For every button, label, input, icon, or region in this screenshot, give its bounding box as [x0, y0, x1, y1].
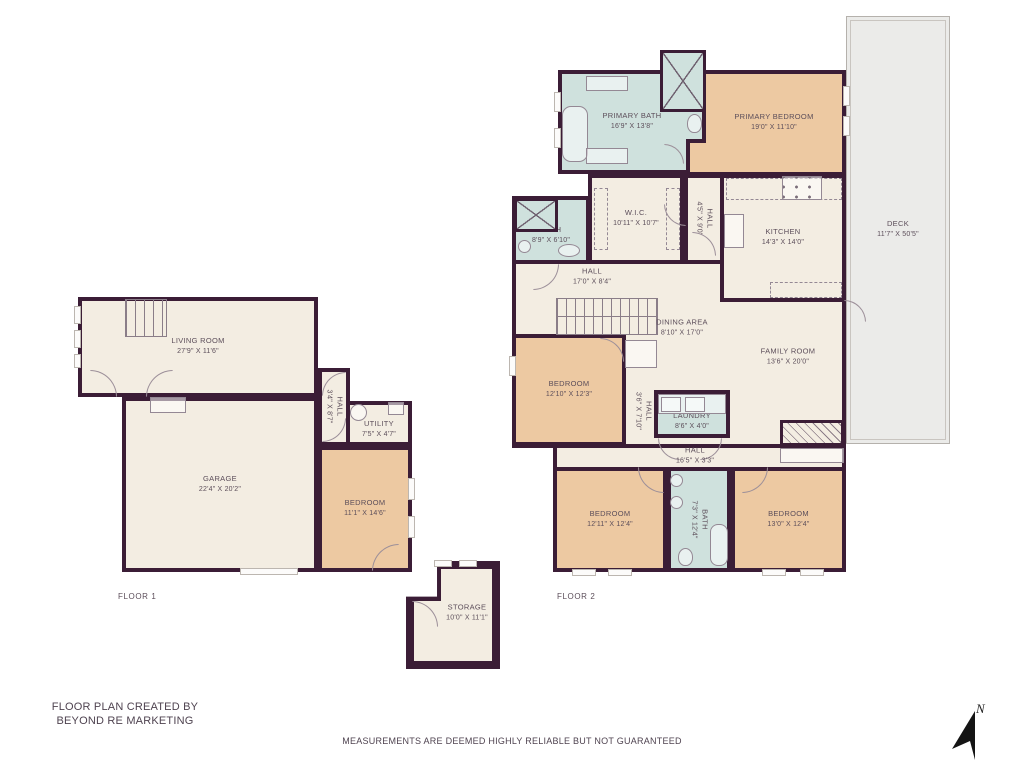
washer [661, 397, 681, 412]
fridge [724, 214, 744, 248]
room-deck-name: DECK [877, 219, 919, 230]
room-utility-dims: 7'5" X 4'7" [362, 430, 396, 440]
room-bedroom-right-dims: 13'0" X 12'4" [767, 520, 809, 530]
room-wic-name: W.I.C. [613, 208, 659, 219]
room-primary-bedroom-label: PRIMARY BEDROOM 19'0" X 11'10" [734, 112, 813, 133]
bathtub-primary [562, 106, 588, 162]
window [554, 128, 561, 148]
room-dining-area-label: DINING AREA 8'10" X 17'0" [656, 317, 708, 338]
dryer [685, 397, 705, 412]
window [843, 86, 850, 106]
room-bedroom-right-name: BEDROOM [767, 509, 809, 520]
room-storage-name: STORAGE [446, 602, 488, 613]
room-bath-mid-name: BATH [699, 500, 710, 538]
room-bedroom-mid-name: BEDROOM [546, 379, 592, 390]
stairs-rail [556, 316, 658, 317]
room-bath-mid-label: BATH 7'3" X 12'4" [688, 500, 709, 538]
room-garage-name: GARAGE [199, 474, 241, 485]
toilet-primary [687, 114, 702, 133]
deck-landing [780, 448, 844, 463]
floor-plan-canvas: DECK 11'7" X 50'5" KITCHEN 14'3" X 14'0"… [0, 0, 1024, 768]
window [408, 478, 415, 500]
room-hall-lower-name: HALL [676, 445, 714, 456]
room-laundry-label: LAUNDRY 8'6" X 4'0" [673, 411, 711, 432]
deck-stairs-hatch [780, 420, 844, 446]
credit-line2: BEYOND RE MARKETING [50, 714, 200, 728]
toilet-small-bath [558, 244, 580, 257]
room-hall-lower-label: HALL 16'5" X 3'3" [676, 445, 714, 466]
room-hall-small-dims: 3'6" X 7'10" [632, 392, 642, 430]
room-primary-bath-name: PRIMARY BATH [602, 111, 661, 122]
room-living-room-label: LIVING ROOM 27'9" X 11'6" [171, 336, 224, 357]
room-primary-bedroom-name: PRIMARY BEDROOM [734, 112, 813, 123]
room-bedroom-floor1-label: BEDROOM 11'1" X 14'6" [344, 498, 386, 519]
room-laundry-dims: 8'6" X 4'0" [673, 422, 711, 432]
room-primary-bath-label: PRIMARY BATH 16'9" X 13'8" [602, 111, 661, 132]
room-hall-lower-dims: 16'5" X 3'3" [676, 456, 714, 466]
window [74, 330, 81, 348]
sink-small-bath [518, 240, 531, 253]
room-living-room-name: LIVING ROOM [171, 336, 224, 347]
north-label: N [975, 701, 986, 716]
window [608, 569, 632, 576]
room-hall-upper-dims: 4'5" X 9'0" [694, 202, 704, 236]
floor1-tag: FLOOR 1 [118, 592, 156, 601]
shower-primary-bath [660, 50, 706, 112]
kitchen-island [770, 282, 842, 298]
garage-door [240, 568, 298, 575]
window [459, 560, 477, 567]
room-bedroom-mid-dims: 12'10" X 12'3" [546, 390, 592, 400]
bedroom-mid-closet [625, 340, 657, 368]
room-living-room-dims: 27'9" X 11'6" [171, 347, 224, 357]
vanity-bottom [586, 148, 628, 164]
shower-small-bath [514, 198, 558, 232]
room-family-room-dims: 13'6" X 20'0" [761, 357, 816, 367]
window [843, 116, 850, 136]
window [408, 516, 415, 538]
floor2-tag: FLOOR 2 [557, 592, 595, 601]
window [434, 560, 452, 567]
room-hall-small-label: HALL 3'6" X 7'10" [632, 392, 653, 430]
room-kitchen-label: KITCHEN 14'3" X 14'0" [762, 227, 804, 248]
room-bedroom-left-label: BEDROOM 12'11" X 12'4" [587, 509, 633, 530]
room-primary-bath-dims: 16'9" X 13'8" [602, 122, 661, 132]
utility-box [388, 402, 404, 415]
vanity-top [586, 76, 628, 91]
room-family-room-label: FAMILY ROOM 13'6" X 20'0" [761, 346, 816, 367]
room-deck: DECK 11'7" X 50'5" [846, 16, 950, 444]
room-primary-bedroom: PRIMARY BEDROOM 19'0" X 11'10" [702, 70, 846, 176]
room-bath-mid-dims: 7'3" X 12'4" [688, 500, 698, 538]
room-living-room: LIVING ROOM 27'9" X 11'6" [78, 297, 318, 397]
window [74, 354, 81, 368]
primary-bedroom-alcove [686, 139, 706, 176]
bathtub-mid [710, 524, 728, 566]
room-family-room-name: FAMILY ROOM [761, 346, 816, 357]
stairs-floor1 [125, 299, 167, 337]
room-bedroom-mid-label: BEDROOM 12'10" X 12'3" [546, 379, 592, 400]
room-utility-label: UTILITY 7'5" X 4'7" [362, 419, 396, 440]
room-storage-dims: 10'0" X 11'1" [446, 613, 488, 623]
room-primary-bedroom-dims: 19'0" X 11'10" [734, 123, 813, 133]
stove [782, 176, 822, 200]
room-hall-main-name: HALL [573, 266, 611, 277]
room-bedroom-left-name: BEDROOM [587, 509, 633, 520]
room-hall-upper-name: HALL [704, 202, 715, 236]
credit-line1: FLOOR PLAN CREATED BY [50, 700, 200, 714]
room-bedroom-left-dims: 12'11" X 12'4" [587, 520, 633, 530]
wic-closet-left [594, 188, 608, 250]
room-garage: GARAGE 22'4" X 20'2" [122, 397, 318, 572]
window [800, 569, 824, 576]
window [509, 356, 516, 376]
room-hall-main-dims: 17'0" X 8'4" [573, 277, 611, 287]
room-hall-upper-label: HALL 4'5" X 9'0" [694, 202, 715, 236]
window [762, 569, 786, 576]
window [572, 569, 596, 576]
room-bedroom-floor1-dims: 11'1" X 14'6" [344, 509, 386, 519]
room-hall-small-name: HALL [643, 392, 654, 430]
room-kitchen-name: KITCHEN [762, 227, 804, 238]
room-bedroom-right-label: BEDROOM 13'0" X 12'4" [767, 509, 809, 530]
sink-mid-bath-2 [670, 496, 683, 509]
room-deck-label: DECK 11'7" X 50'5" [877, 219, 919, 240]
room-dining-area-dims: 8'10" X 17'0" [656, 328, 708, 338]
room-wic-label: W.I.C. 10'11" X 10'7" [613, 208, 659, 229]
room-dining-area-name: DINING AREA [656, 317, 708, 328]
window [74, 306, 81, 324]
north-arrow-icon: N [948, 696, 994, 764]
disclaimer-text: MEASUREMENTS ARE DEEMED HIGHLY RELIABLE … [0, 736, 1024, 746]
room-hall-main-label: HALL 17'0" X 8'4" [573, 266, 611, 287]
sink-mid-bath-1 [670, 474, 683, 487]
room-garage-dims: 22'4" X 20'2" [199, 485, 241, 495]
room-wic-dims: 10'11" X 10'7" [613, 219, 659, 229]
water-heater [350, 404, 367, 421]
garage-platform [150, 397, 186, 413]
room-storage-label: STORAGE 10'0" X 11'1" [446, 602, 488, 623]
toilet-mid-bath [678, 548, 693, 566]
room-kitchen-dims: 14'3" X 14'0" [762, 238, 804, 248]
room-utility-name: UTILITY [362, 419, 396, 430]
credit-block: FLOOR PLAN CREATED BY BEYOND RE MARKETIN… [50, 700, 200, 729]
window [554, 92, 561, 112]
north-arrow-shape [952, 711, 975, 760]
room-garage-label: GARAGE 22'4" X 20'2" [199, 474, 241, 495]
room-deck-dims: 11'7" X 50'5" [877, 230, 919, 240]
room-bedroom-floor1-name: BEDROOM [344, 498, 386, 509]
